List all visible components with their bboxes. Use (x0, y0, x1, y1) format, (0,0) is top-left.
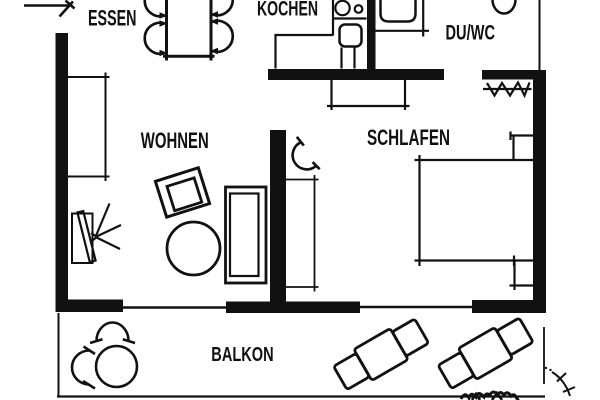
svg-text:ESSEN: ESSEN (88, 6, 137, 31)
svg-text:WOHNEN: WOHNEN (141, 128, 209, 153)
svg-text:BALKON: BALKON (211, 343, 273, 366)
svg-text:KOCHEN: KOCHEN (257, 0, 318, 21)
svg-text:SCHLAFEN: SCHLAFEN (367, 125, 450, 150)
svg-text:DU/WC: DU/WC (446, 22, 496, 45)
